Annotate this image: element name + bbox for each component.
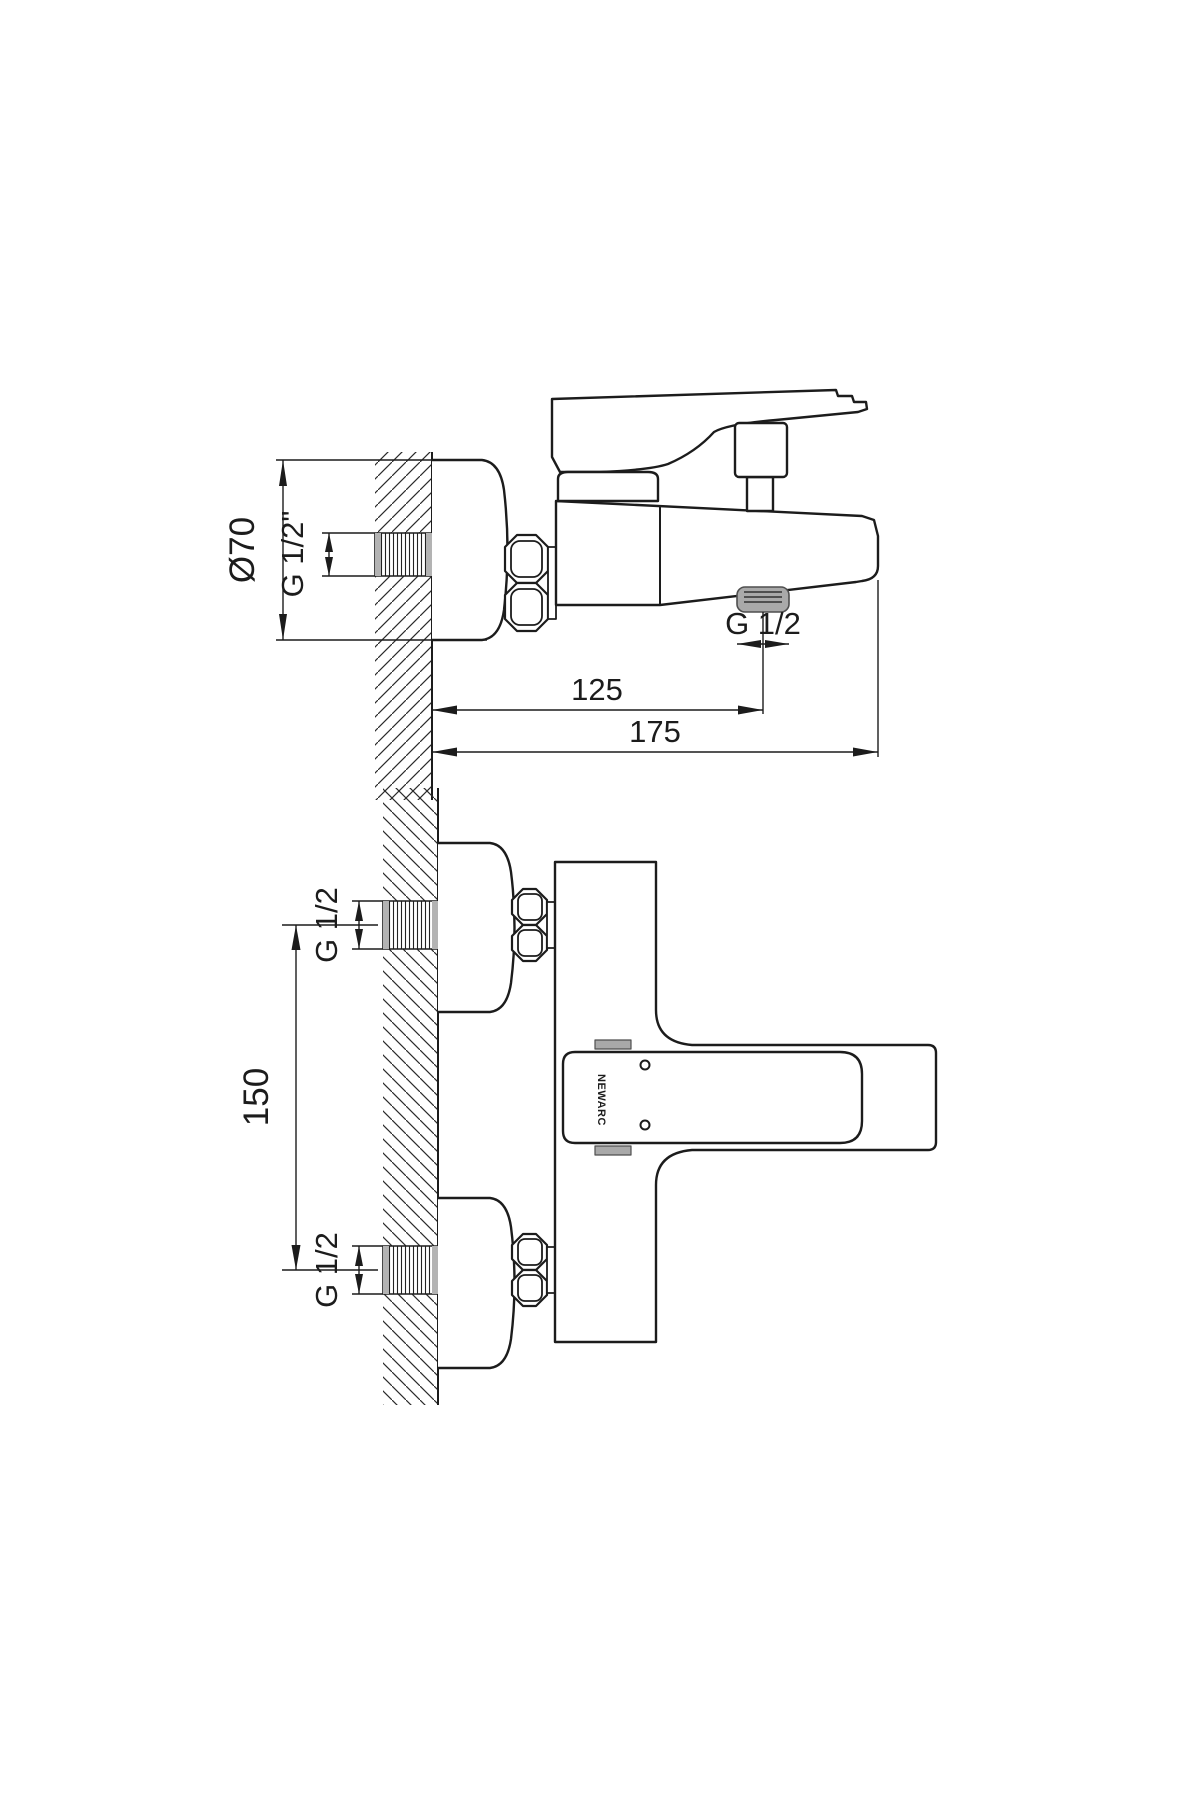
label-inlet-spacing: 150 <box>237 1068 276 1126</box>
side-wall-thread <box>375 533 432 576</box>
front-top-thread <box>383 901 438 949</box>
side-wall-hatch <box>375 452 432 800</box>
label-wall-thread: G 1/2" <box>275 511 310 598</box>
front-wall-hatch <box>383 788 438 1405</box>
front-tab-top <box>595 1040 631 1049</box>
front-top-flange <box>438 843 515 1012</box>
brand-logo: NEWARC <box>595 1074 607 1126</box>
label-flange-diameter: Ø70 <box>223 517 262 583</box>
label-wall-to-tip: 175 <box>629 714 681 749</box>
label-bottom-inlet-thread: G 1/2 <box>309 1232 344 1308</box>
front-bottom-thread <box>383 1246 438 1294</box>
front-hole-top <box>641 1061 650 1070</box>
drawing-page: Ø70 G 1/2" G 1/2 125 <box>0 0 1200 1800</box>
side-cartridge-collar <box>558 472 658 501</box>
front-tab-bottom <box>595 1146 631 1155</box>
front-hole-bottom <box>641 1121 650 1130</box>
front-bottom-flange <box>438 1198 515 1368</box>
label-top-inlet-thread: G 1/2 <box>309 887 344 963</box>
label-wall-to-outlet: 125 <box>571 672 623 707</box>
side-flange <box>432 460 508 640</box>
faucet-technical-drawing: Ø70 G 1/2" G 1/2 125 <box>0 0 1200 1800</box>
